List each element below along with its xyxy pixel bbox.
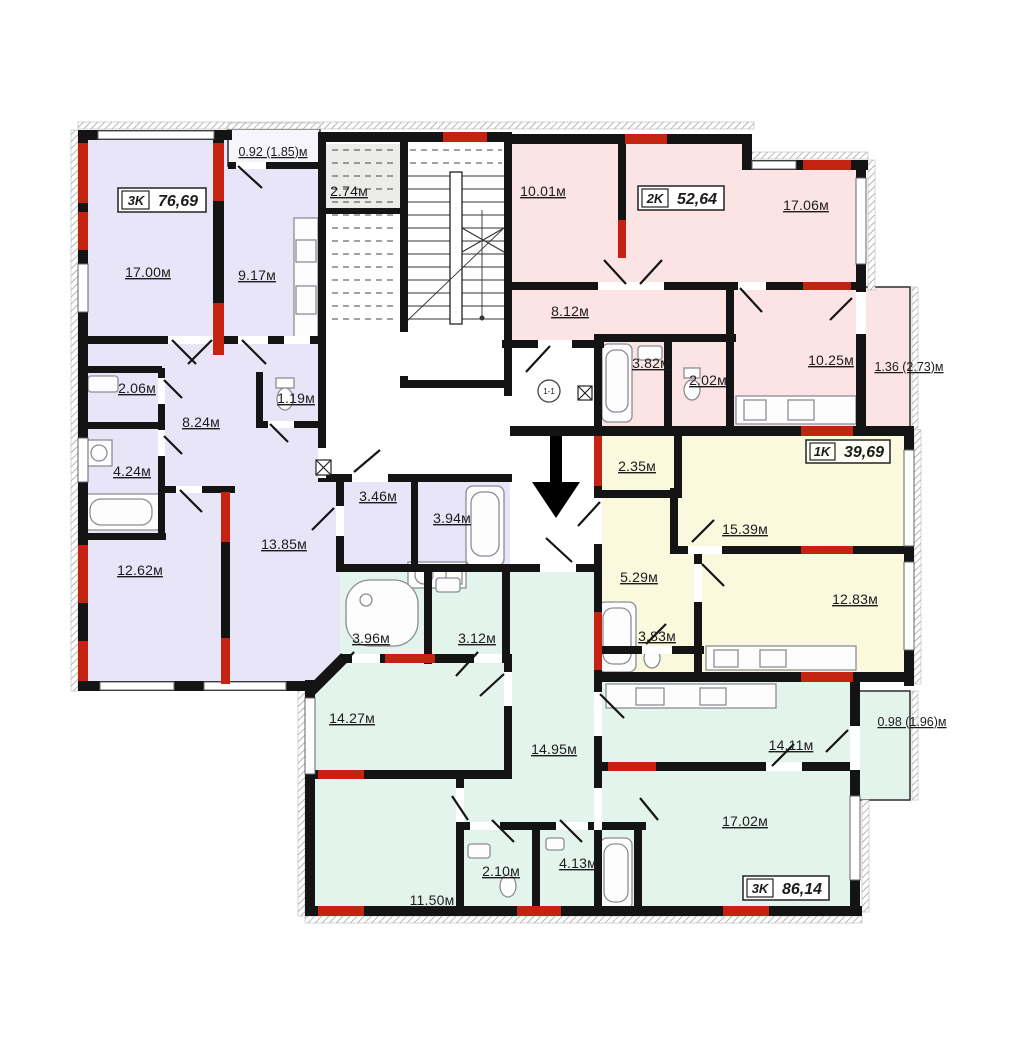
room-label: 12.83м — [832, 591, 878, 607]
apartment-type: 3K — [752, 881, 770, 896]
apartment-type: 3K — [128, 193, 146, 208]
entrance-arrow-icon — [532, 436, 580, 518]
room-label: 14.27м — [329, 710, 375, 726]
apartment-area: 52,64 — [677, 191, 717, 208]
apartment-type: 1K — [814, 444, 832, 459]
room-label: 2.02м — [689, 372, 727, 388]
room-label: 2.10м — [482, 863, 520, 879]
room-label: 3.96м — [352, 630, 390, 646]
apartment-area: 39,69 — [844, 444, 884, 461]
apartment-area: 86,14 — [782, 881, 822, 898]
washing-machine-icon — [86, 440, 112, 466]
apartment-label-3k-left: 3K 76,69 — [118, 188, 206, 212]
apartment-type: 2K — [646, 191, 665, 206]
balcony-label: 1.36 (2.73)м — [874, 360, 943, 374]
room-label: 11.50м — [410, 892, 455, 908]
staircase — [332, 150, 506, 324]
sink-icon — [468, 844, 490, 858]
door-marker-label: 1-1 — [543, 387, 555, 396]
room-label: 10.01м — [520, 183, 566, 199]
room-label: 3.82м — [632, 355, 670, 371]
room-label: 8.24м — [182, 414, 220, 430]
floorplan-drawing: 1-1 17.00м 9.17м 0.92 (1.85)м 2.74м 2.06… — [0, 0, 1024, 1048]
room-label: 17.02м — [722, 813, 768, 829]
room-label: 17.06м — [783, 197, 829, 213]
kitchen-counter-icon — [294, 218, 318, 338]
room-label: 2.06м — [118, 380, 156, 396]
room-label: 2.35м — [618, 458, 656, 474]
balcony-mint — [858, 691, 910, 800]
sink-icon — [88, 376, 118, 392]
room-label: 5.29м — [620, 569, 658, 585]
vent-shaft-icon — [578, 386, 592, 400]
room-label: 1.19м — [277, 390, 315, 406]
apartment-area: 76,69 — [158, 193, 198, 210]
balcony-label: 0.98 (1.96)м — [877, 715, 946, 729]
room-label: 4.24м — [113, 463, 151, 479]
balcony-pink — [862, 287, 910, 430]
room-label: 8.12м — [551, 303, 589, 319]
room-label: 15.39м — [722, 521, 768, 537]
apartment-label-3k-bottom: 3K 86,14 — [743, 876, 829, 900]
room-label: 17.00м — [125, 264, 171, 280]
vent-shaft-icon — [316, 460, 331, 475]
apartment-label-1k: 1K 39,69 — [806, 440, 890, 463]
room-label: 3.94м — [433, 510, 471, 526]
toilet-icon — [276, 378, 294, 388]
sink-icon — [546, 838, 564, 850]
room-label: 3.12м — [458, 630, 496, 646]
elevator-area — [324, 144, 404, 210]
elevator-label: 2.74м — [330, 183, 368, 199]
room-label: 14.95м — [531, 741, 577, 757]
room-label: 3.83м — [638, 628, 676, 644]
bathtub-icon — [598, 602, 636, 672]
room-label: 13.85м — [261, 536, 307, 552]
floorplan-page: 1-1 17.00м 9.17м 0.92 (1.85)м 2.74м 2.06… — [0, 0, 1024, 1048]
kitchen-counter-icon — [606, 684, 776, 708]
room-label: 10.25м — [808, 352, 854, 368]
room-label: 9.17м — [238, 267, 276, 283]
room-label: 4.13м — [559, 855, 597, 871]
balcony-label: 0.92 (1.85)м — [238, 145, 307, 159]
room-label: 3.46м — [359, 488, 397, 504]
room-label: 14.11м — [769, 737, 814, 753]
door-marker: 1-1 — [538, 380, 560, 402]
room-label: 12.62м — [117, 562, 163, 578]
apartment-label-2k: 2K 52,64 — [638, 186, 724, 210]
sink-icon — [436, 578, 460, 592]
